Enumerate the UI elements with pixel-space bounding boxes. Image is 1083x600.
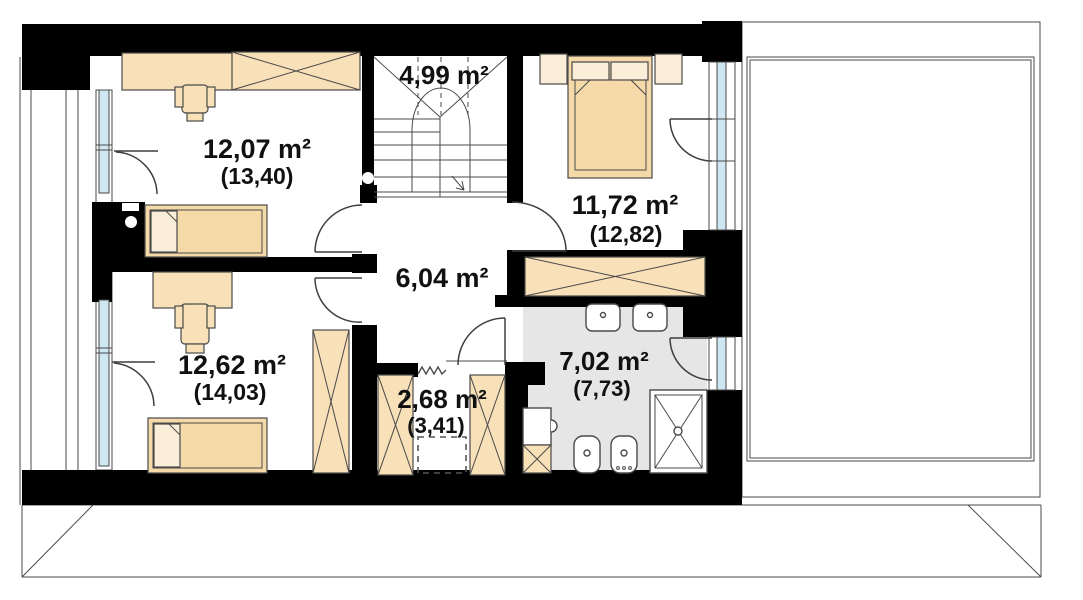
hall-area-label: 6,04 m² [395, 263, 488, 293]
wardrobe-icon [525, 257, 705, 296]
bathroom-area-label: 7,02 m² [559, 346, 649, 376]
bedroom2-area-label: 11,72 m² [572, 190, 679, 220]
wardrobe-icon [313, 330, 349, 473]
bedroom2-gross-label: (12,82) [590, 221, 663, 247]
bedroom1-gross-label: (13,40) [221, 163, 294, 189]
desk-icon [122, 53, 233, 90]
bed-icon [148, 418, 267, 473]
toilet-icon [574, 436, 600, 473]
floor-plan-canvas: 4,99 m² 12,07 m² (13,40) 11,72 m² (12,82… [0, 0, 1083, 600]
window-right-bathroom [709, 337, 735, 390]
bedroom3-area-label: 12,62 m² [178, 350, 286, 380]
wardrobe-icon [232, 52, 360, 90]
staircase-area-label: 4,99 m² [399, 60, 489, 90]
bed-icon [145, 205, 267, 257]
shower-icon [650, 390, 707, 473]
bedroom1-area-label: 12,07 m² [203, 134, 311, 164]
floor-plan: 4,99 m² 12,07 m² (13,40) 11,72 m² (12,82… [0, 0, 1083, 600]
bathroom-gross-label: (7,73) [573, 376, 630, 401]
bidet-icon [611, 436, 637, 473]
desk-icon [153, 272, 232, 308]
closet-gross-label: (3,41) [407, 413, 464, 438]
bedroom3-gross-label: (14,03) [194, 379, 267, 405]
closet-area-label: 2,68 m² [397, 384, 487, 414]
double-bed-icon [568, 56, 652, 178]
window-right-bedroom [709, 62, 735, 230]
stair-newel [362, 172, 374, 184]
